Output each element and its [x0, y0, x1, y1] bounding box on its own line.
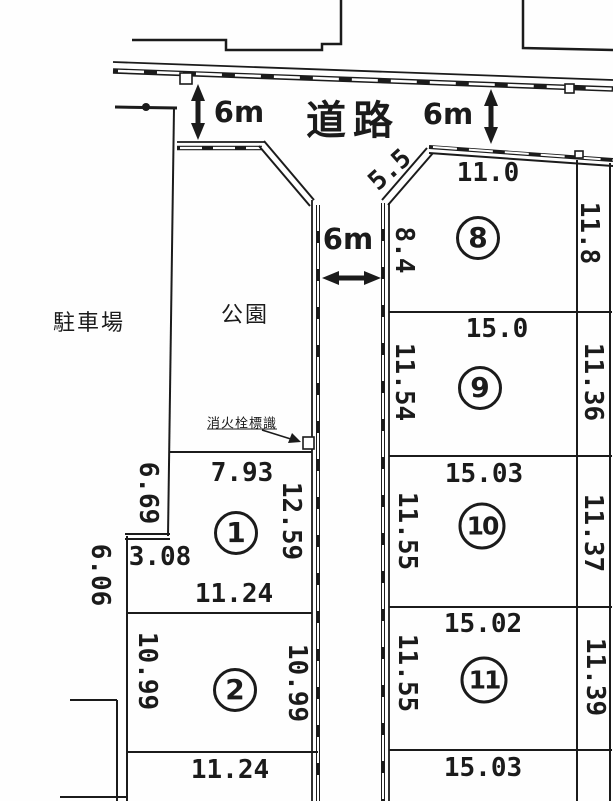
- plot-2-circle: 2: [213, 668, 257, 712]
- land-plot-map: 道路 6m 6m 6m 駐車場 公園 消火栓標識 5.5 11.0 8.4 11…: [0, 0, 613, 801]
- road-width-label-center: 6m: [323, 222, 373, 256]
- dim-plot8-top: 11.0: [457, 158, 520, 188]
- building-outlines: [132, 0, 613, 50]
- dim-plot8-right: 11.8: [574, 202, 604, 265]
- dim-plot11-left: 11.55: [392, 634, 422, 712]
- dim-plot10-left: 11.55: [392, 492, 422, 570]
- utility-pole-dot: [142, 103, 150, 111]
- dim-plot1-top: 7.93: [211, 458, 274, 488]
- plot-10-circle: 10: [459, 503, 506, 550]
- plot-8-circle: 8: [456, 216, 500, 260]
- dim-plot1-left-lower: 6.06: [85, 544, 115, 607]
- road-marker-square: [575, 151, 583, 158]
- parking-north-boundary: [115, 103, 177, 111]
- road-width-arrow-right: [484, 89, 498, 144]
- dim-plot10-right: 11.37: [578, 494, 608, 572]
- dim-plot1-bottom: 11.24: [195, 579, 273, 609]
- road-width-label-left: 6m: [214, 95, 264, 129]
- road-marker-square: [180, 73, 192, 84]
- park-area-label: 公園: [221, 297, 269, 329]
- dim-plot1-left-upper: 6.69: [133, 462, 163, 525]
- dim-plot8-left: 8.4: [389, 227, 419, 274]
- dim-plot11-right: 11.39: [580, 638, 610, 716]
- fire-hydrant-leader-arrow: [262, 430, 301, 443]
- dim-plot11-top: 15.02: [444, 609, 522, 639]
- fire-hydrant-sign-label: 消火栓標識: [207, 413, 277, 432]
- road-width-arrow-center: [322, 271, 381, 285]
- dim-plot9-top: 15.0: [466, 314, 529, 344]
- road-width-arrow-left: [191, 84, 205, 140]
- dim-plot1-right: 12.59: [276, 482, 306, 560]
- road-label: 道路: [306, 88, 400, 146]
- dim-plot2-bottom: 11.24: [191, 755, 269, 785]
- parking-area-label: 駐車場: [53, 305, 125, 337]
- fire-hydrant-marker: [303, 437, 314, 449]
- plot-1-circle: 1: [214, 511, 258, 555]
- road-width-label-right: 6m: [423, 97, 473, 131]
- dim-plot1-left-step: 3.08: [129, 542, 192, 572]
- dim-plot2-left: 10.99: [132, 632, 162, 710]
- plot-11-circle: 11: [461, 657, 508, 704]
- plot-9-circle: 9: [458, 366, 502, 410]
- dim-plot9-right: 11.36: [578, 343, 608, 421]
- dim-plot9-left: 11.54: [389, 343, 419, 421]
- dim-plot10-top: 15.03: [445, 459, 523, 489]
- plot-boundaries-left: [60, 108, 318, 801]
- road-marker-square: [565, 84, 574, 93]
- dim-plot11-bottom: 15.03: [444, 753, 522, 783]
- dim-plot2-right: 10.99: [282, 644, 312, 722]
